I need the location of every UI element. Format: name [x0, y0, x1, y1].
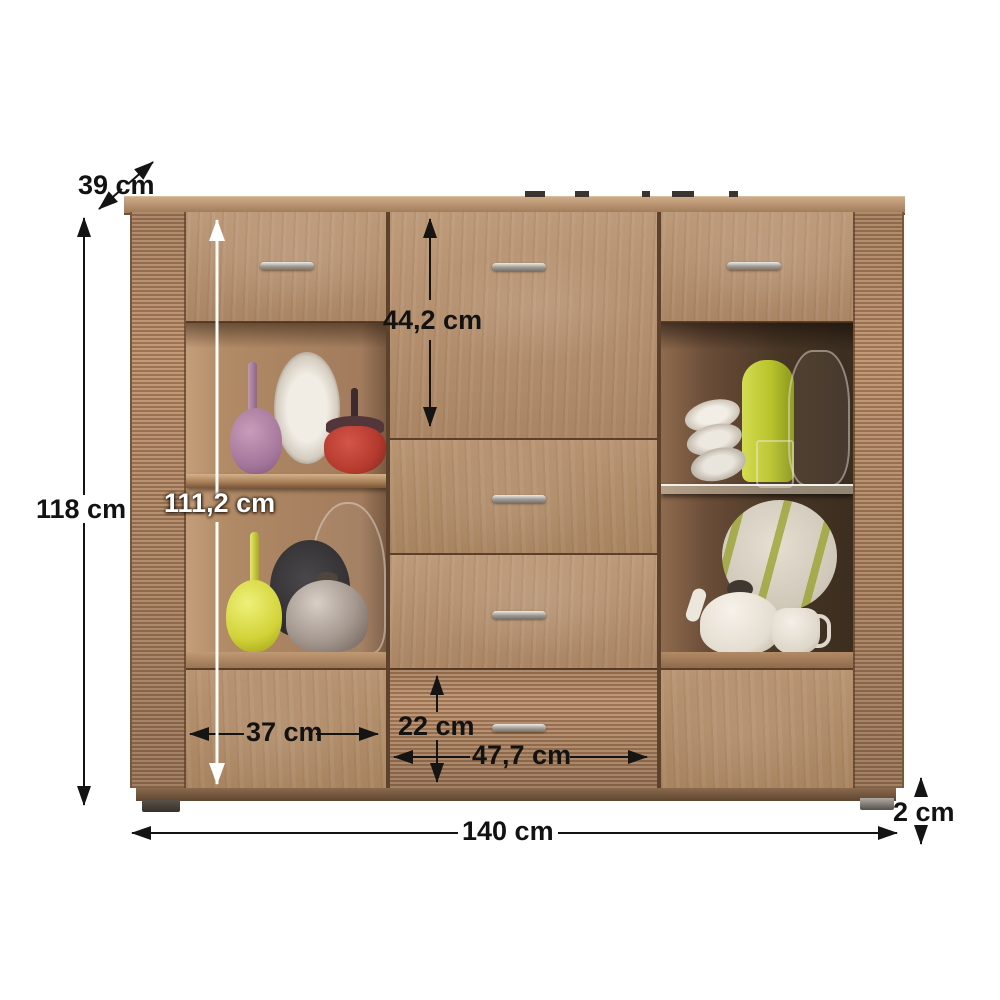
- depth-label: 39 cm: [78, 171, 155, 199]
- right-side-panel: [853, 212, 904, 788]
- yellow-vase: [226, 580, 282, 652]
- base-plinth: [136, 788, 896, 801]
- inner-height-label: 111,2 cm: [164, 489, 275, 517]
- foot-height-label: 2 cm: [893, 798, 955, 826]
- divider-right: [657, 212, 661, 788]
- milk-jug: [772, 608, 820, 654]
- red-vase: [324, 426, 386, 474]
- right-door-handle: [727, 262, 781, 270]
- top-edge-mark: [575, 191, 589, 197]
- drawer-column: [390, 212, 658, 788]
- right-display-floor: [661, 652, 853, 668]
- right-display-interior: [661, 322, 853, 668]
- glass-pitcher: [788, 350, 850, 486]
- right-foot: [860, 798, 894, 810]
- left-door-top-panel: [186, 212, 389, 322]
- silver-pot: [286, 580, 368, 652]
- glass-shelf: [661, 484, 853, 494]
- left-display-floor: [186, 652, 389, 668]
- left-door-divider-top: [186, 321, 389, 323]
- bottom-drawer-handle: [492, 724, 546, 732]
- center-width-label: 47,7 cm: [472, 741, 571, 769]
- top-drawer-handle: [492, 263, 546, 271]
- purple-vase: [230, 408, 282, 474]
- top-edge-mark: [525, 191, 545, 197]
- glass-tumbler: [756, 440, 794, 488]
- teapot: [700, 592, 780, 654]
- right-door-top-panel: [661, 212, 853, 322]
- purple-vase-neck: [248, 362, 257, 414]
- second-drawer-handle: [492, 495, 546, 503]
- top-drawer-label: 44,2 cm: [383, 306, 482, 334]
- third-drawer-handle: [492, 611, 546, 619]
- furniture-dimension-diagram: 39 cm 118 cm 111,2 cm 44,2 cm 37 cm 22 c…: [0, 0, 1000, 1000]
- bottom-drawer-label: 22 cm: [398, 712, 475, 740]
- second-drawer: [390, 438, 658, 555]
- divider-left: [386, 212, 390, 788]
- top-edge-mark: [672, 191, 694, 197]
- height-label: 118 cm: [32, 495, 130, 523]
- left-door-handle: [260, 262, 314, 270]
- left-shelf: [186, 474, 389, 488]
- right-door-divider-top: [661, 321, 853, 323]
- right-display-door: [661, 212, 855, 788]
- right-door-bottom-panel: [661, 668, 853, 790]
- left-foot: [142, 800, 180, 812]
- yellow-vase-neck: [250, 532, 259, 586]
- door-width-label: 37 cm: [246, 718, 323, 746]
- total-width-label: 140 cm: [458, 817, 558, 845]
- third-drawer: [390, 553, 658, 670]
- top-edge-mark: [729, 191, 738, 197]
- top-edge-mark: [642, 191, 650, 197]
